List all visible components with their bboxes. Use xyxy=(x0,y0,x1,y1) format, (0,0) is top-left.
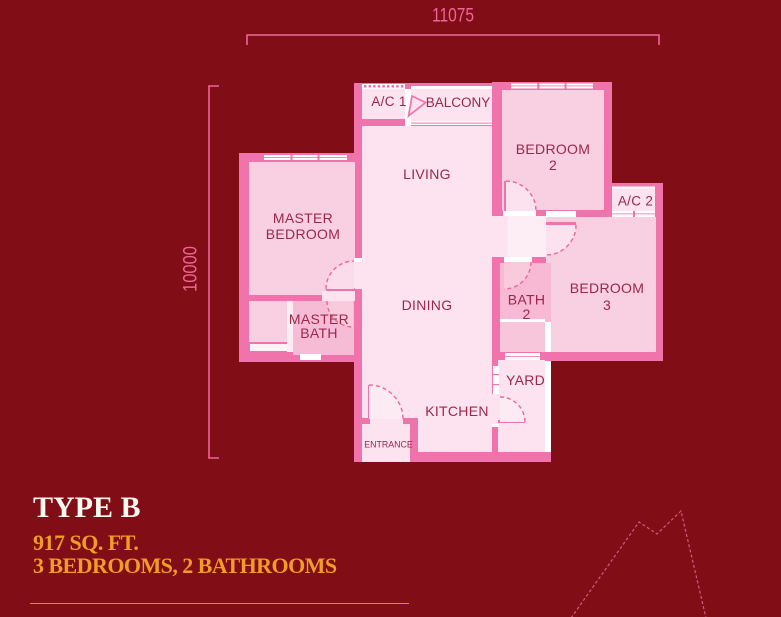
svg-text:KITCHEN: KITCHEN xyxy=(425,403,489,419)
svg-text:BALCONY: BALCONY xyxy=(426,95,491,110)
svg-text:2: 2 xyxy=(549,157,557,173)
svg-text:BEDROOM: BEDROOM xyxy=(266,226,340,242)
svg-text:A/C 1: A/C 1 xyxy=(371,94,406,109)
svg-text:11075: 11075 xyxy=(432,6,474,27)
svg-text:BATH: BATH xyxy=(300,325,338,341)
svg-text:DINING: DINING xyxy=(402,297,453,313)
svg-text:LIVING: LIVING xyxy=(403,166,451,182)
svg-text:BEDROOM: BEDROOM xyxy=(516,141,590,157)
svg-text:BEDROOM: BEDROOM xyxy=(570,280,644,296)
svg-text:ENTRANCE: ENTRANCE xyxy=(364,440,413,450)
svg-text:MASTER: MASTER xyxy=(273,210,333,226)
svg-text:3: 3 xyxy=(603,297,611,313)
svg-text:YARD: YARD xyxy=(506,372,545,388)
svg-text:A/C 2: A/C 2 xyxy=(618,194,653,209)
svg-text:2: 2 xyxy=(522,306,530,322)
svg-text:10000: 10000 xyxy=(181,246,202,292)
